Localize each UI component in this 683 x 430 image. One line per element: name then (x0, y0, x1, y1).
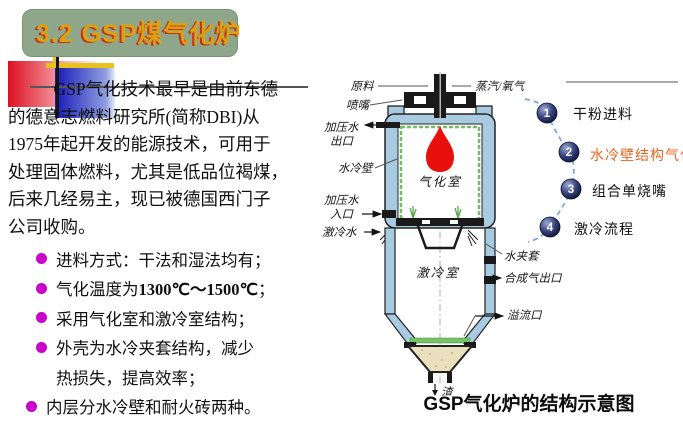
label-quench-chamber: 激冷室 (416, 266, 460, 280)
bullet-text: 进料方式：干法和湿法均有； (56, 247, 271, 271)
quench-wall-right (485, 228, 495, 314)
label-nozzle: 喷嘴 (346, 99, 371, 112)
intro-line: 后来几经易主，现已被德国西门子 (8, 186, 328, 214)
quench-wall-left (385, 228, 395, 314)
bullet-text: 外壳为水冷夹套结构，减少 (56, 335, 254, 359)
page-title: 3.2 GSP煤气化炉 (22, 9, 238, 57)
intro-line: 公司收购。 (8, 214, 328, 242)
slide: 3.2 GSP煤气化炉 GSP气化技术最早是由前东德 的德意志燃料研究所(简称D… (0, 0, 683, 430)
step-number: 4 (547, 222, 554, 234)
feed-tube-line (440, 74, 442, 118)
quench-spray-right (468, 230, 478, 246)
intro-paragraph: GSP气化技术最早是由前东德 的德意志燃料研究所(简称DBI)从 1975年起开… (8, 76, 328, 241)
quench-ring-gap (422, 220, 430, 224)
label-gasification-chamber: 气化室 (418, 175, 462, 189)
water-surface (410, 338, 470, 343)
label-water-wall: 水冷壁 (338, 162, 374, 175)
bullet-list: 进料方式：干法和湿法均有； 气化温度为1300℃～1500℃； 采用气化室和激冷… (36, 244, 336, 421)
bullet-item-continuation: 热损失，提高效率； (36, 362, 336, 392)
label-press-water-in-2: 入口 (330, 208, 354, 221)
bullet-item: 内层分水冷壁和耐火砖两种。 (26, 392, 336, 422)
intro-line: 的德意志燃料研究所(简称DBI)从 (8, 104, 328, 132)
bullet-text: 热损失，提高效率； (56, 365, 205, 389)
label-press-water-in: 加压水 (324, 194, 359, 207)
step-label-quench-process: 激冷流程 (574, 219, 634, 239)
label-press-water-out: 加压水 (324, 121, 359, 134)
label-syngas-outlet: 合成气出口 (504, 272, 562, 285)
intro-line: GSP气化技术最早是由前东德 (8, 76, 328, 104)
step-label-dry-feed: 干粉进料 (573, 104, 633, 124)
quench-ring-band (396, 218, 484, 226)
water-outlet-pipe (376, 122, 400, 128)
label-press-water-out-2: 出口 (330, 135, 354, 148)
burner-cap-gap (454, 96, 466, 104)
syngas-port-flange (484, 276, 496, 284)
syngas-port-flange (484, 256, 496, 264)
bullet-dot-icon (36, 312, 47, 323)
bullet-dot-icon (36, 283, 47, 294)
bullet-item: 气化温度为1300℃～1500℃； (36, 274, 336, 304)
step-number: 1 (544, 108, 551, 120)
label-water-jacket: 水夹套 (504, 250, 540, 263)
step-label-combined-burner: 组合单烧嘴 (592, 181, 667, 201)
bullet-item: 采用气化室和激冷室结构； (36, 303, 336, 333)
intro-line: 1975年起开发的能源技术，可用于 (8, 131, 328, 159)
slag-tube-left (428, 372, 433, 383)
bullet-text: 采用气化室和激冷室结构； (56, 306, 254, 330)
leader-nozzle (370, 100, 402, 105)
horizontal-rule-right (566, 81, 678, 83)
bullet-text: 内层分水冷壁和耐火砖两种。 (46, 394, 261, 418)
step-number: 3 (568, 184, 574, 196)
step-label-water-wall-gasifier: 水冷壁结构气化炉 (590, 145, 683, 165)
bullet-dot-icon (26, 401, 37, 412)
quench-ring-gap (450, 220, 458, 224)
intro-line: 处理固体燃料，尤其是低品位褐煤， (8, 159, 328, 187)
bullet-item: 进料方式：干法和湿法均有； (36, 244, 336, 274)
label-raw-material: 原料 (351, 80, 375, 93)
slag-tube-right (447, 372, 452, 383)
label-overflow: 溢流口 (507, 309, 543, 322)
label-quench-water: 激冷水 (322, 226, 357, 239)
slag-funnel (408, 346, 472, 372)
bullet-item: 外壳为水冷夹套结构，减少 (36, 333, 336, 363)
label-steam-oxygen: 蒸汽/氧气 (475, 80, 526, 93)
bullet-dot-icon (36, 342, 47, 353)
water-inlet-port (382, 210, 396, 218)
bullet-text: 气化温度为1300℃～1500℃； (56, 276, 275, 300)
burner-cap-gap (414, 96, 426, 104)
step-number: 2 (566, 147, 572, 159)
bullet-dot-icon (36, 253, 47, 264)
diagram-caption: GSP气化炉的结构示意图 (383, 389, 675, 416)
